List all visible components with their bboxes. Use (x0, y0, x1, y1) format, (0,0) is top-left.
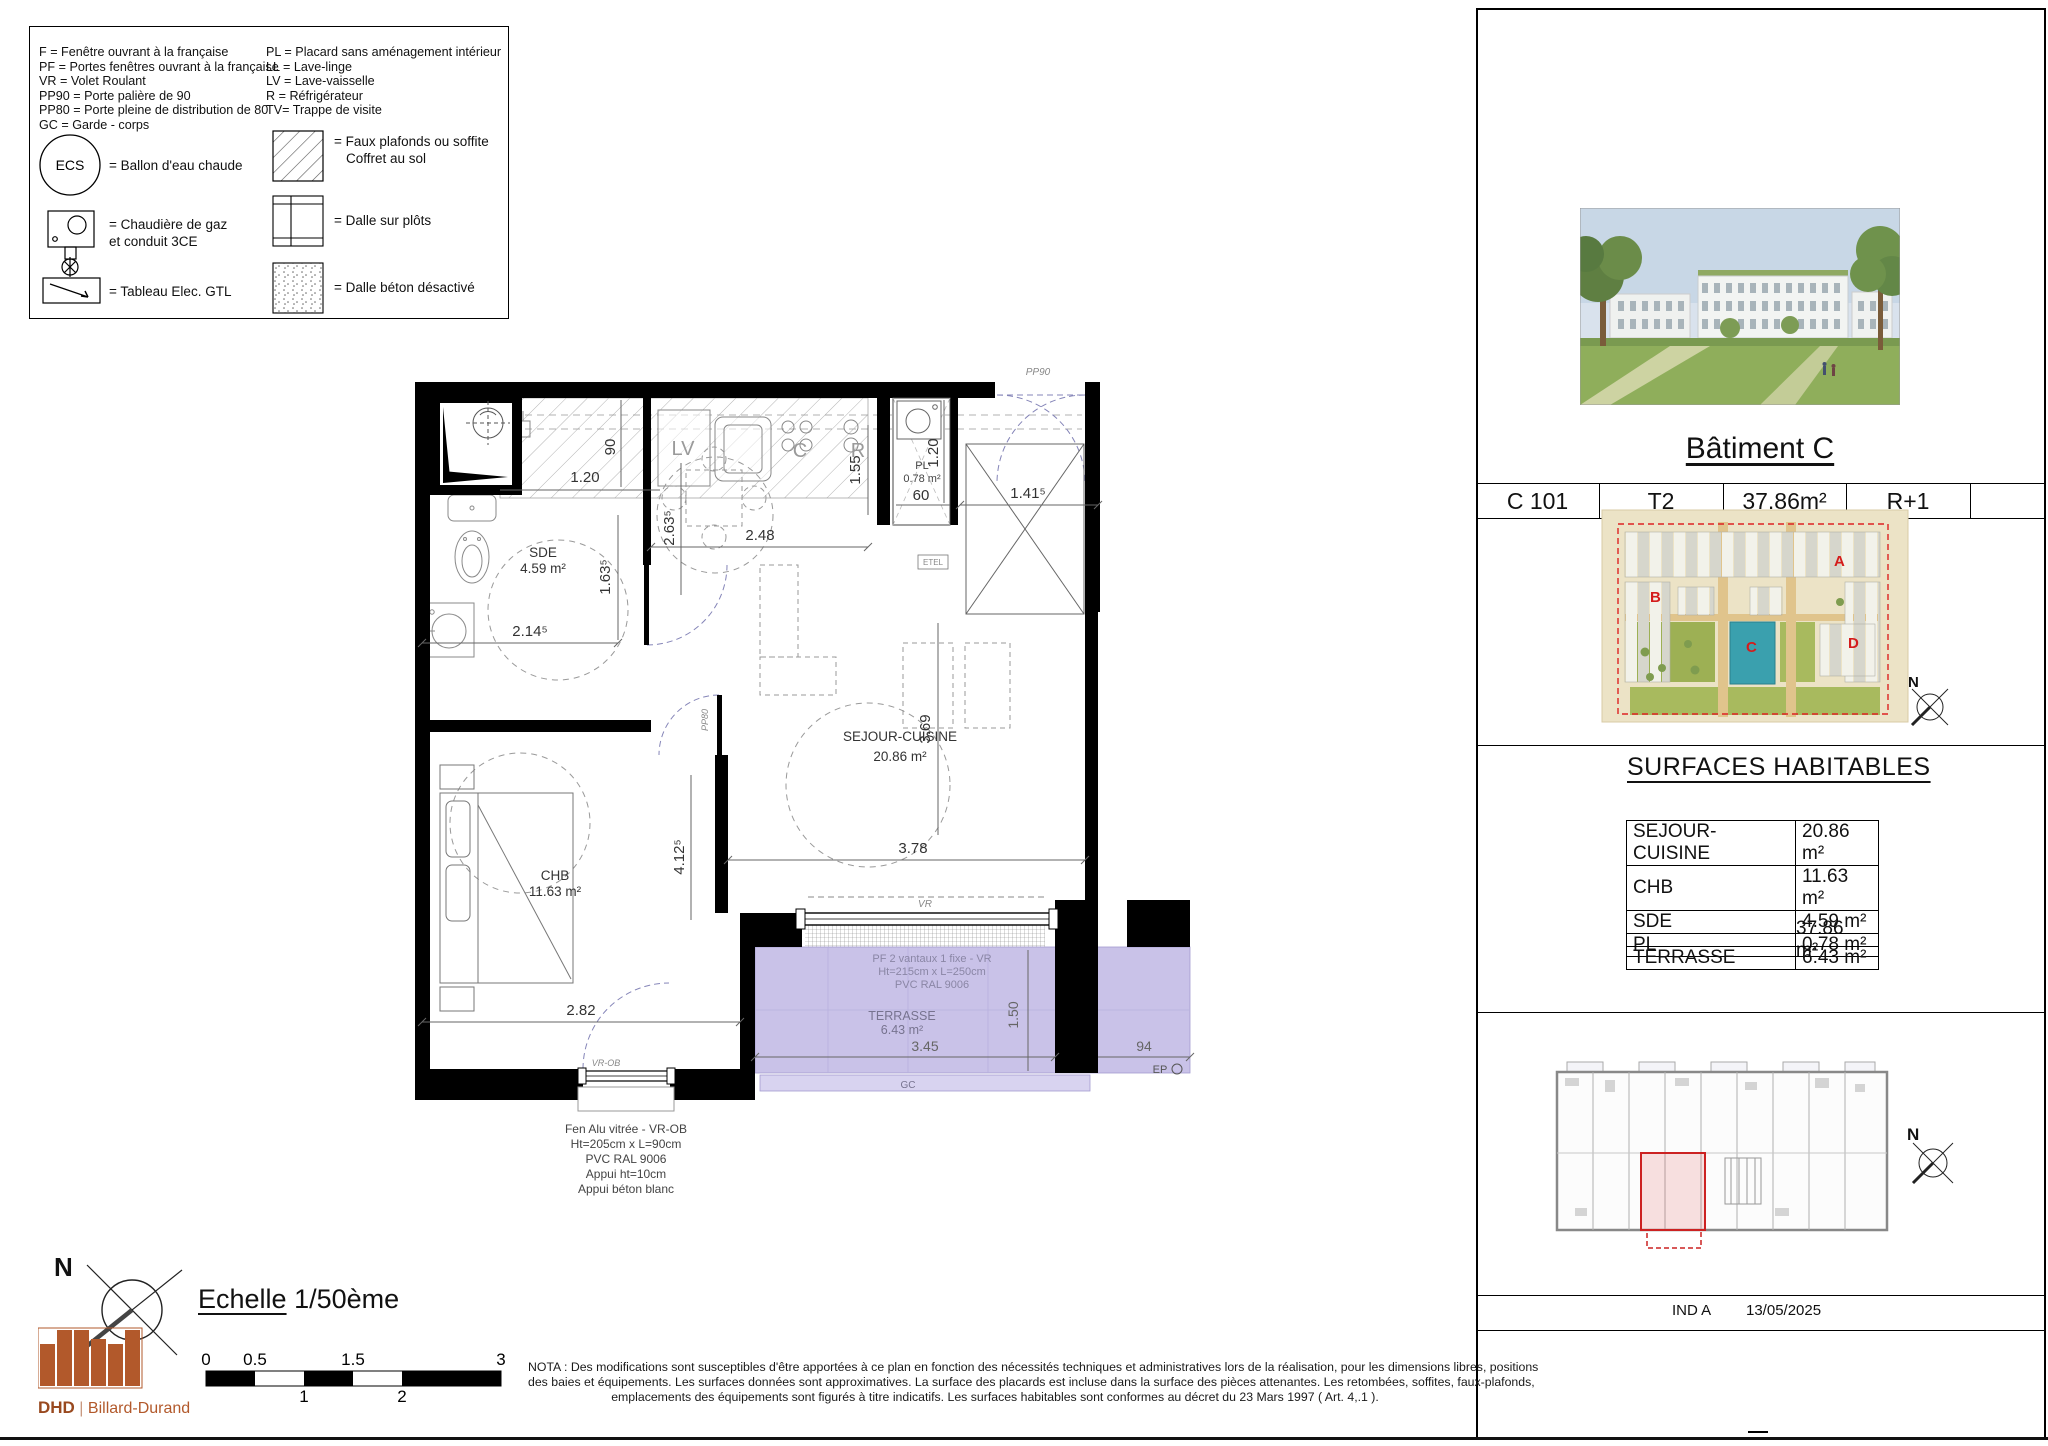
nota-line-3: emplacements des équipements sont figuré… (528, 1390, 1462, 1405)
ecs-ballon-icon: ECS (40, 135, 100, 195)
site-plan: A B C D N (1590, 502, 1960, 747)
dim: 1.41⁵ (1010, 485, 1045, 502)
dim: 60 (913, 487, 930, 504)
table-row: SEJOUR-CUISINE 20.86 m² (1627, 821, 1879, 866)
scale-tick: 1.5 (341, 1350, 365, 1369)
scale-tick: 1 (299, 1387, 308, 1403)
terrace-table: TERRASSE 6.43 m² (1626, 946, 1879, 970)
vr-label: VR (918, 899, 932, 910)
highlighted-unit (1641, 1153, 1705, 1230)
panel-right-border (2044, 8, 2046, 1438)
landing-slab (966, 444, 1084, 614)
room-chb-area: 11.63 m² (529, 884, 582, 899)
scale-bar: 0 0.5 1.5 3 1 2 (193, 1345, 523, 1403)
pf-note-1: PF 2 vantaux 1 fixe - VR (872, 953, 991, 965)
room-pl-area: 0.78 m² (903, 473, 941, 485)
fen-note-4: Appui ht=10cm (586, 1167, 666, 1181)
ballon-label: = Ballon d'eau chaude (109, 158, 243, 173)
floor-key-plan: N (1545, 1058, 1965, 1268)
index-label: IND A (1672, 1302, 1711, 1319)
room-terrasse-name: TERRASSE (868, 1009, 935, 1023)
index-date: 13/05/2025 (1746, 1302, 1821, 1319)
fen-note-5: Appui béton blanc (578, 1182, 674, 1196)
scale-value: 1/50ème (294, 1284, 399, 1314)
dim: 94 (1136, 1038, 1152, 1054)
scale-tick: 3 (496, 1350, 505, 1369)
dhd-logo-dhd: DHD (38, 1398, 75, 1417)
dim: 3.78 (898, 840, 927, 857)
dhd-logo-text: DHD | Billard-Durand (38, 1398, 190, 1418)
site-green (1630, 687, 1880, 715)
toilet (448, 495, 496, 583)
dim: 3.69 (917, 714, 934, 743)
dim: 1.20 (570, 469, 599, 486)
nota-block: NOTA : Des modifications sont susceptibl… (528, 1360, 1462, 1406)
hatch-label-1: = Faux plafonds ou soffite (334, 134, 489, 149)
keyplan-north-compass: N (1907, 1125, 1953, 1183)
vrob-window (578, 1068, 675, 1111)
ep-label: EP (1153, 1064, 1168, 1076)
plan-sheet: { "colors": { "terrace": "#c9c2e8", "ter… (0, 0, 2048, 1446)
dim: 2.82 (566, 1002, 595, 1019)
dim: 1.50 (1005, 1001, 1021, 1028)
scale-tick: 2 (397, 1387, 406, 1403)
dhd-logo-sep: | (79, 1400, 83, 1417)
cooktop-label: C (793, 440, 807, 462)
building-title: Bâtiment C (1640, 432, 1880, 466)
fridge-label: R (851, 440, 865, 462)
dishwasher-label: LV (672, 438, 696, 460)
boiler-label-2: et conduit 3CE (109, 234, 198, 249)
room-sejour-name: SEJOUR-CUISINE (843, 729, 957, 744)
stipple-label: = Dalle béton désactivé (334, 280, 475, 295)
dim: 2.14⁵ (512, 623, 547, 640)
terrace-value: 6.43 m² (1796, 947, 1879, 970)
gc-label: GC (901, 1080, 916, 1091)
nota-line-1: NOTA : Des modifications sont susceptibl… (528, 1360, 1462, 1375)
fen-note-2: Ht=205cm x L=90cm (571, 1137, 682, 1151)
dalle-beton-icon (273, 263, 323, 313)
surface-label: SDE (1627, 911, 1796, 934)
duct-shaft (430, 393, 522, 495)
pf-note-2: Ht=215cm x L=250cm (878, 966, 986, 978)
dim: 2.48 (745, 527, 774, 544)
site-north-compass: N (1908, 674, 1948, 725)
dalle-plots-icon (273, 196, 323, 246)
elec-label: = Tableau Elec. GTL (109, 284, 231, 299)
table-row: CHB 11.63 m² (1627, 866, 1879, 911)
kitchen-sink (715, 417, 771, 481)
unit-table-divider (1970, 483, 1971, 519)
svg-text:N: N (54, 1252, 73, 1282)
fen-note-3: PVC RAL 9006 (586, 1152, 667, 1166)
dim: 3.45 (911, 1038, 938, 1054)
plots-label: = Dalle sur plôts (334, 213, 431, 228)
site-label-b: B (1650, 589, 1661, 606)
legend-symbols: ECS (30, 27, 508, 318)
panel-line (1476, 1295, 2046, 1296)
dhd-logo-icon (38, 1326, 168, 1398)
scale-tick: 0 (201, 1350, 210, 1369)
dhd-logo-name: Billard-Durand (88, 1400, 190, 1417)
legend-box: F = Fenêtre ouvrant à la française PF = … (29, 26, 509, 319)
table-row: TERRASSE 6.43 m² (1627, 947, 1879, 970)
building-photo (1580, 208, 1900, 405)
chb-door-label: PP80 (700, 709, 710, 731)
elec-panel-icon (43, 278, 100, 303)
site-label-d: D (1848, 635, 1859, 652)
panel-divider (1476, 8, 1478, 1438)
washbasin (424, 603, 474, 657)
vrob-label: VR-OB (592, 1058, 621, 1068)
panel-line (1476, 483, 2046, 484)
fen-note-1: Fen Alu vitrée - VR-OB (565, 1122, 687, 1136)
surface-label: CHB (1627, 866, 1796, 911)
threshold-grid (805, 925, 1045, 947)
kitchen-strip (441, 398, 1082, 498)
dim: 1.20 (925, 438, 942, 467)
terrace-label: TERRASSE (1627, 947, 1796, 970)
boiler-label-1: = Chaudière de gaz (109, 217, 227, 232)
etel-label: ETEL (923, 558, 944, 567)
scale-title: Echelle 1/50ème (198, 1284, 399, 1315)
surfaces-title: SURFACES HABITABLES (1627, 753, 1931, 782)
unit-ref: C 101 (1476, 488, 1599, 515)
site-label-a: A (1834, 553, 1845, 570)
room-chb-name: CHB (541, 868, 570, 883)
nota-line-2: des baies et équipements. Les surfaces d… (528, 1375, 1462, 1390)
scale-tick: 0.5 (243, 1350, 267, 1369)
panel-bottom-tick (1748, 1431, 1768, 1433)
guardrail-band (760, 1075, 1090, 1091)
boiler-icon (48, 211, 94, 277)
surface-value: 20.86 m² (1796, 821, 1879, 866)
svg-text:ECS: ECS (56, 157, 85, 173)
svg-text:N: N (1908, 674, 1919, 691)
site-label-c: C (1746, 639, 1757, 656)
washing-machine (897, 401, 941, 439)
sheet-bottom-border (0, 1437, 2048, 1440)
hatch-label-2: Coffret au sol (346, 151, 426, 166)
room-sde-name: SDE (529, 545, 557, 560)
dim: 4.12⁵ (671, 839, 688, 874)
surface-value: 11.63 m² (1796, 866, 1879, 911)
room-sejour-area: 20.86 m² (873, 749, 927, 764)
panel-top-border (1476, 8, 2046, 10)
panel-line (1476, 1012, 2046, 1013)
surface-label: SEJOUR-CUISINE (1627, 821, 1796, 866)
dim: 2.63⁵ (661, 510, 678, 545)
highlighted-terrace (1647, 1230, 1701, 1248)
floor-plan: SDE 4.59 m² CHB 11.63 m² SEJOUR-CUISINE … (408, 365, 1230, 1210)
site-green (1780, 622, 1815, 682)
room-sde-area: 4.59 m² (520, 561, 566, 576)
scale-label: Echelle (198, 1284, 287, 1314)
room-terrasse-area: 6.43 m² (881, 1023, 923, 1037)
dim: 1.63⁵ (597, 559, 614, 594)
entry-door-label: PP90 (1026, 367, 1051, 378)
dim: 90 (602, 439, 619, 456)
svg-text:N: N (1907, 1125, 1919, 1144)
pf-note-3: PVC RAL 9006 (895, 979, 969, 991)
faux-plafond-hatch-icon (273, 131, 323, 181)
panel-line (1476, 1330, 2046, 1331)
sofa (760, 565, 836, 695)
